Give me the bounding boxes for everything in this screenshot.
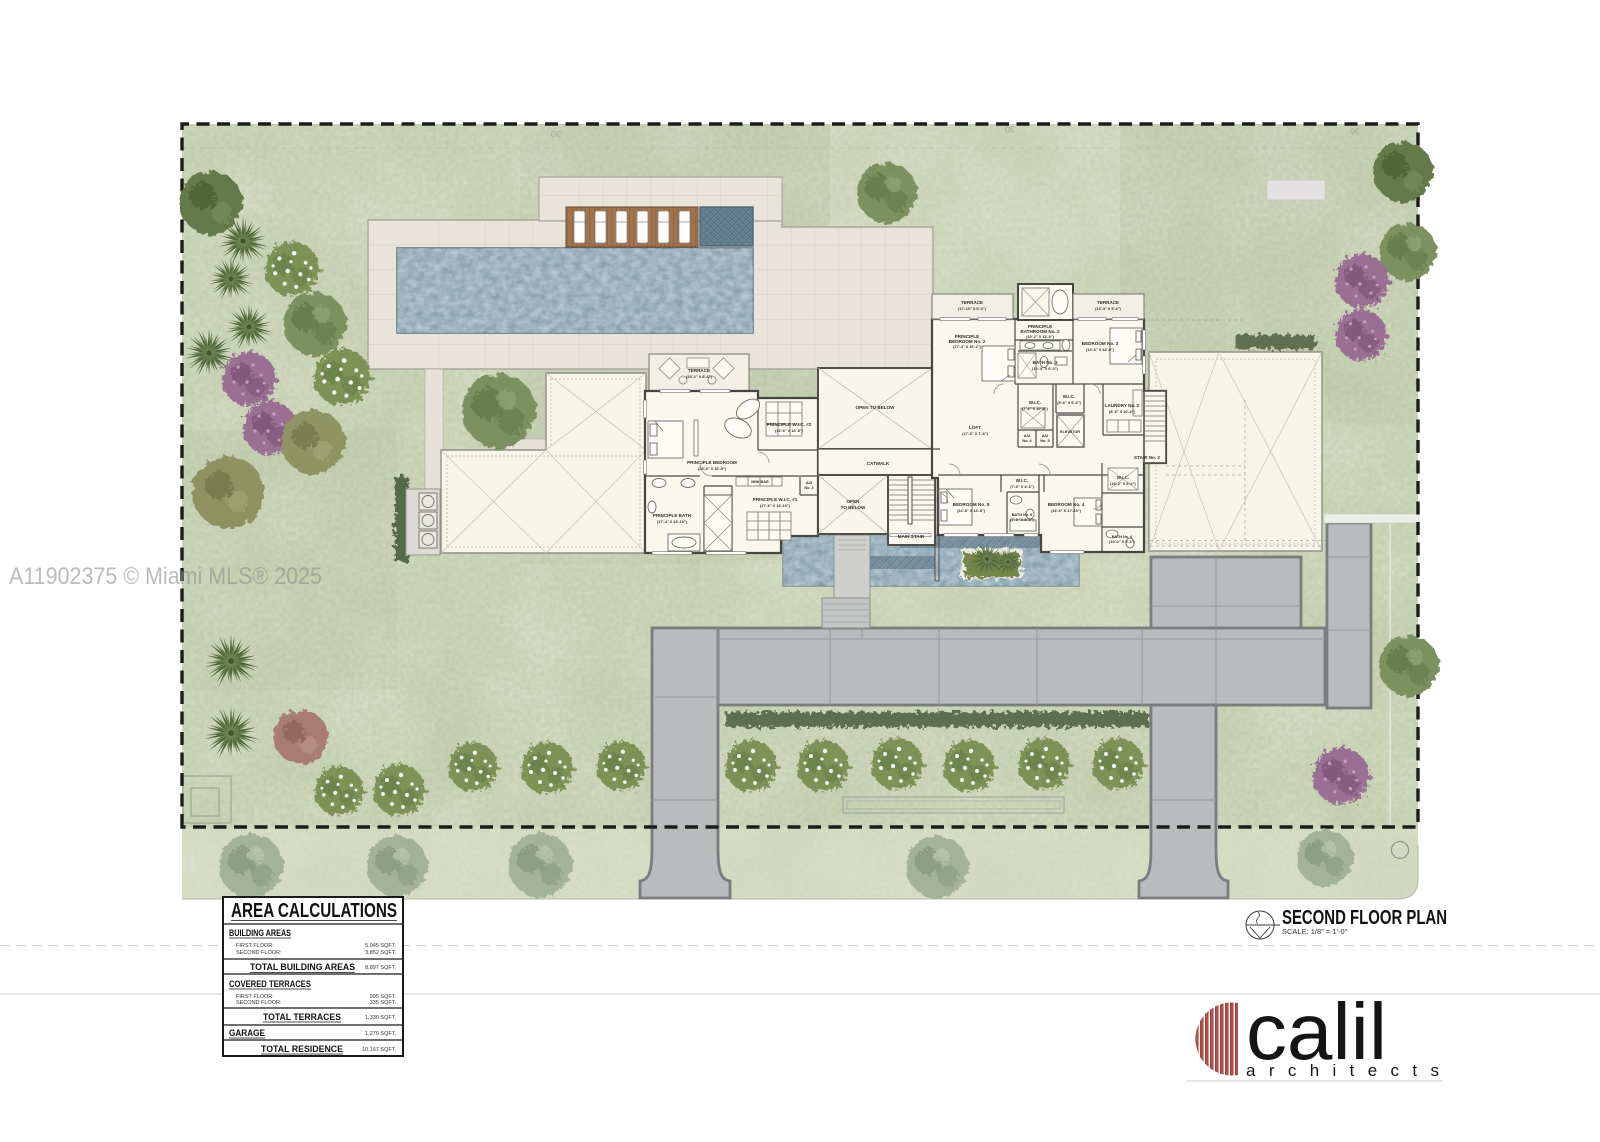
svg-text:(8'-6" X 10'-6"): (8'-6" X 10'-6") [1109, 410, 1135, 414]
svg-text:W.I.C.: W.I.C. [1063, 394, 1076, 399]
svg-text:MINI-BAR: MINI-BAR [751, 480, 769, 484]
svg-text:OPEN: OPEN [846, 499, 860, 504]
svg-text:TERRACE: TERRACE [688, 368, 710, 373]
svg-text:BATH No. 3: BATH No. 3 [1033, 360, 1058, 365]
svg-text:(10'-2" X 9'-6"): (10'-2" X 9'-6") [1109, 540, 1135, 544]
svg-text:BEDROOM No. 5: BEDROOM No. 5 [953, 502, 990, 507]
svg-text:TO BELOW: TO BELOW [841, 505, 866, 510]
svg-text:(17'-10" X 9'-0"): (17'-10" X 9'-0") [958, 307, 987, 311]
svg-text:GARAGE: GARAGE [229, 1028, 265, 1038]
svg-text:(7'-0" X 4'-6"): (7'-0" X 4'-6") [1010, 485, 1034, 489]
svg-text:PRINCIPLE W.I.C. #2: PRINCIPLE W.I.C. #2 [767, 422, 812, 427]
svg-text:3,852 SQFT.: 3,852 SQFT. [365, 950, 396, 956]
svg-text:AREA CALCULATIONS: AREA CALCULATIONS [231, 900, 397, 922]
svg-text:8,897 SQFT.: 8,897 SQFT. [365, 965, 396, 971]
svg-text:W.I.C.: W.I.C. [1117, 475, 1130, 480]
svg-text:PRINCIPLE W.I.C. #1: PRINCIPLE W.I.C. #1 [753, 497, 798, 502]
svg-text:TOTAL BUILDING AREAS: TOTAL BUILDING AREAS [250, 962, 355, 972]
svg-text:SECOND FLOOR PLAN: SECOND FLOOR PLAN [1282, 907, 1447, 929]
svg-text:W.I.C.: W.I.C. [1029, 400, 1042, 405]
svg-text:(12'-6" X 13'-8"): (12'-6" X 13'-8") [775, 429, 804, 433]
svg-text:(17'-6" X 7'-6"): (17'-6" X 7'-6") [962, 432, 988, 436]
svg-text:ELEVATOR: ELEVATOR [1060, 430, 1080, 434]
svg-text:(10'-2" X 12'-6"): (10'-2" X 12'-6") [1026, 335, 1055, 339]
svg-text:LAUNDRY No. 2: LAUNDRY No. 2 [1105, 403, 1140, 408]
svg-text:(14'-6" X 17'-10"): (14'-6" X 17'-10") [1051, 509, 1082, 513]
svg-text:BATH No. 5: BATH No. 5 [1012, 513, 1033, 517]
svg-text:(13'-4" X 9'-6"): (13'-4" X 9'-6") [1095, 307, 1121, 311]
svg-text:A/U: A/U [1042, 434, 1049, 438]
svg-text:OPEN TO BELOW: OPEN TO BELOW [856, 405, 896, 410]
svg-text:No. 5: No. 5 [1040, 439, 1049, 443]
svg-text:30: 30 [551, 129, 561, 139]
svg-text:A/U: A/U [806, 481, 813, 485]
svg-text:30: 30 [1350, 126, 1360, 136]
svg-text:BATHROOM No. 2: BATHROOM No. 2 [1020, 329, 1060, 334]
svg-text:30: 30 [1005, 124, 1015, 134]
svg-text:(14'-8" X 13'-8"): (14'-8" X 13'-8") [957, 509, 986, 513]
svg-text:MAIN STAIR: MAIN STAIR [898, 534, 925, 539]
svg-text:(10'-2" X 6'-6"): (10'-2" X 6'-6") [1110, 482, 1136, 486]
svg-text:(5'-6" X 6'-6"): (5'-6" X 6'-6") [1057, 401, 1081, 405]
svg-text:(17'-6" X 13'-10"): (17'-6" X 13'-10") [760, 504, 791, 508]
svg-text:CATWALK: CATWALK [867, 461, 890, 466]
svg-text:BEDROOM No. 2: BEDROOM No. 2 [949, 339, 986, 344]
svg-text:10,167 SQFT.: 10,167 SQFT. [362, 1047, 396, 1053]
svg-text:(10'-4" X 6'-0"): (10'-4" X 6'-0") [1032, 367, 1058, 371]
svg-text:No. 3: No. 3 [804, 486, 813, 490]
svg-text:PRINCIPLE BATH: PRINCIPLE BATH [653, 513, 692, 518]
svg-text:BATH No. 4: BATH No. 4 [1112, 535, 1133, 539]
svg-text:335 SQFT.: 335 SQFT. [370, 1000, 397, 1006]
svg-text:(13'-6" X 13'-0"): (13'-6" X 13'-0") [1086, 348, 1115, 352]
svg-text:TOTAL TERRACES: TOTAL TERRACES [263, 1012, 341, 1022]
svg-text:STAIR No. 2: STAIR No. 2 [1134, 455, 1160, 460]
svg-text:SCALE: 1/8" = 1'-0": SCALE: 1/8" = 1'-0" [1282, 927, 1348, 936]
svg-text:COVERED TERRACES: COVERED TERRACES [229, 979, 311, 989]
svg-text:LOFT: LOFT [969, 425, 981, 430]
svg-text:SECOND FLOOR:: SECOND FLOOR: [236, 1000, 282, 1006]
svg-text:A/U: A/U [1024, 434, 1031, 438]
svg-text:TOTAL RESIDENCE: TOTAL RESIDENCE [261, 1044, 343, 1054]
svg-text:FIRST FLOOR:: FIRST FLOOR: [236, 943, 274, 949]
svg-text:(23'-2" X 8'-6"): (23'-2" X 8'-6") [686, 375, 712, 379]
svg-text:TERRACE: TERRACE [961, 300, 983, 305]
svg-text:W.I.C.: W.I.C. [1016, 478, 1029, 483]
svg-text:TERRACE: TERRACE [1097, 300, 1119, 305]
svg-text:1,270 SQFT.: 1,270 SQFT. [365, 1031, 396, 1037]
svg-text:(7'-0" X 8'-6"): (7'-0" X 8'-6") [1010, 518, 1034, 522]
svg-text:A11902375 © Miami MLS® 2025: A11902375 © Miami MLS® 2025 [9, 563, 322, 590]
svg-text:(7'-6" X 10'-6"): (7'-6" X 10'-6") [1022, 407, 1048, 411]
svg-text:(17'-4" X 16'-2"): (17'-4" X 16'-2") [953, 345, 982, 349]
svg-text:No. 4: No. 4 [1022, 439, 1032, 443]
svg-text:(23'-6" X 16'-8"): (23'-6" X 16'-8") [698, 467, 727, 471]
svg-text:(17'-4" X 13'-10"): (17'-4" X 13'-10") [657, 520, 688, 524]
svg-text:1,330 SQFT.: 1,330 SQFT. [365, 1015, 396, 1021]
svg-text:BEDROOM No. 4: BEDROOM No. 4 [1048, 502, 1085, 507]
svg-text:PRINCIPLE BEDROOM: PRINCIPLE BEDROOM [687, 460, 737, 465]
svg-text:BUILDING AREAS: BUILDING AREAS [229, 928, 291, 938]
svg-text:BEDROOM No. 3: BEDROOM No. 3 [1082, 341, 1119, 346]
svg-text:SECOND FLOOR:: SECOND FLOOR: [236, 950, 282, 956]
svg-text:5,045 SQFT.: 5,045 SQFT. [365, 943, 396, 949]
